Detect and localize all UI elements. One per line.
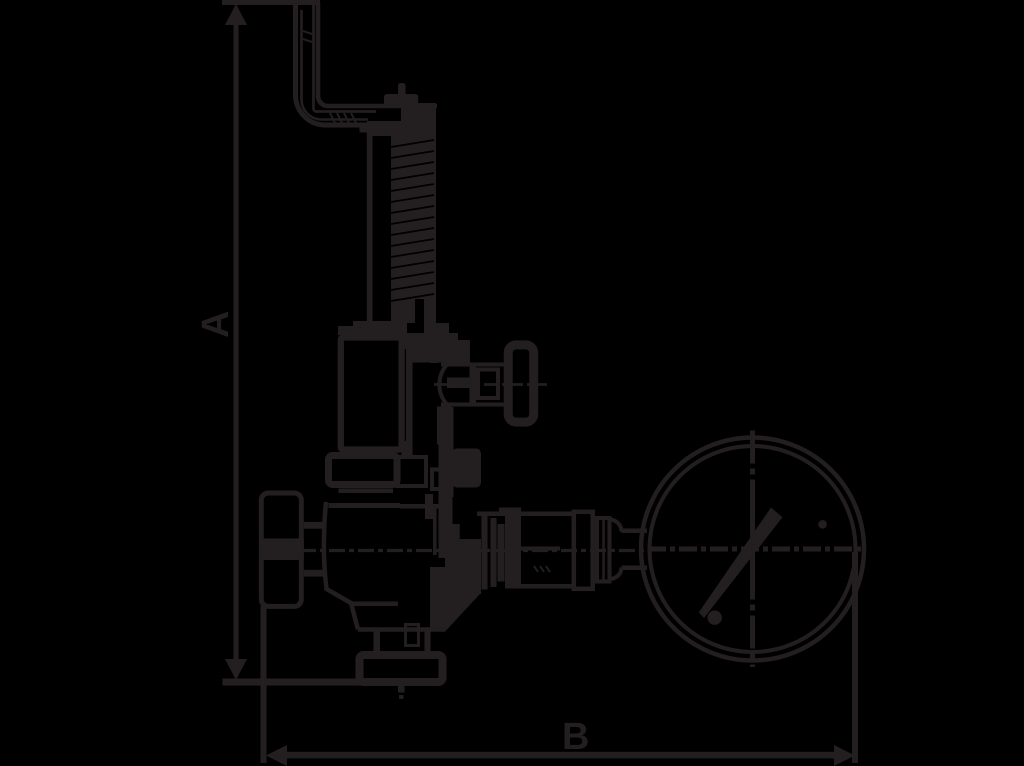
svg-text:B: B xyxy=(562,716,589,758)
svg-text:A: A xyxy=(195,311,237,338)
